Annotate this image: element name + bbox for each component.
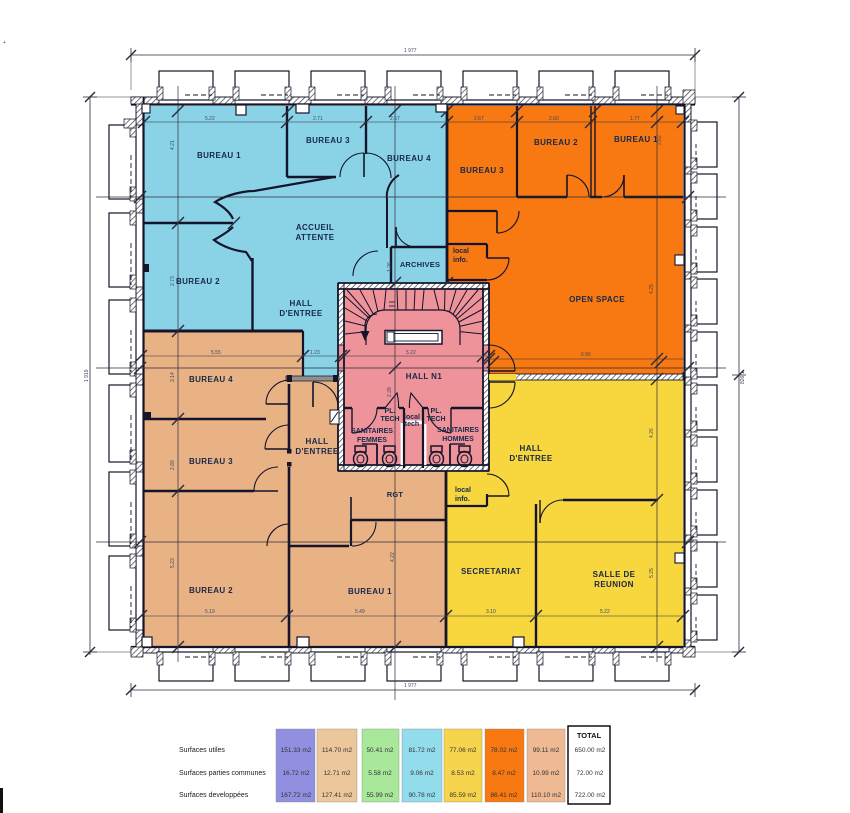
svg-text:OPEN SPACE: OPEN SPACE — [569, 295, 625, 304]
svg-text:110.10 m2: 110.10 m2 — [531, 792, 562, 799]
svg-text:BUREAU 1: BUREAU 1 — [348, 587, 392, 596]
svg-text:4.26: 4.26 — [649, 428, 655, 438]
svg-text:Surfaces utiles: Surfaces utiles — [179, 747, 225, 754]
svg-text:info.: info. — [455, 496, 470, 503]
svg-text:3.10: 3.10 — [486, 609, 496, 615]
svg-text:info.: info. — [453, 257, 468, 264]
svg-text:HALL: HALL — [306, 437, 329, 446]
svg-text:5.22: 5.22 — [205, 116, 215, 122]
svg-text:BUREAU 3: BUREAU 3 — [460, 166, 504, 175]
svg-text:4.21: 4.21 — [170, 140, 176, 150]
svg-text:BUREAU 4: BUREAU 4 — [387, 154, 431, 163]
svg-text:9.06 m2: 9.06 m2 — [410, 770, 434, 777]
svg-text:3.14: 3.14 — [170, 372, 176, 382]
svg-text:5.19: 5.19 — [205, 609, 215, 615]
svg-text:HALL: HALL — [290, 299, 313, 308]
svg-text:tech: tech — [405, 421, 419, 428]
svg-text:SALLE DE: SALLE DE — [593, 570, 636, 579]
svg-text:1 919: 1 919 — [84, 369, 90, 382]
svg-text:55.99 m2: 55.99 m2 — [366, 792, 393, 799]
svg-text:local: local — [455, 487, 471, 494]
svg-text:2.89: 2.89 — [170, 460, 176, 470]
svg-text:2.28: 2.28 — [387, 387, 393, 397]
svg-text:2.60: 2.60 — [549, 116, 559, 122]
svg-text:4.25: 4.25 — [649, 284, 655, 294]
svg-text:1.26: 1.26 — [387, 262, 393, 272]
svg-text:local: local — [453, 248, 469, 255]
svg-text:TOTAL: TOTAL — [577, 731, 602, 740]
svg-text:114.70 m2: 114.70 m2 — [322, 747, 353, 754]
svg-text:HOMMES: HOMMES — [442, 436, 474, 443]
svg-text:BUREAU 2: BUREAU 2 — [534, 138, 578, 147]
svg-text:90.78 m2: 90.78 m2 — [408, 792, 435, 799]
svg-text:5.25: 5.25 — [649, 568, 655, 578]
svg-text:1 977: 1 977 — [404, 683, 417, 689]
svg-text:8.47 m2: 8.47 m2 — [492, 770, 516, 777]
svg-text:127.41 m2: 127.41 m2 — [322, 792, 353, 799]
svg-text:SANITAIRES: SANITAIRES — [351, 428, 393, 435]
svg-text:85.59 m2: 85.59 m2 — [449, 792, 476, 799]
svg-text:TECH: TECH — [426, 416, 445, 423]
svg-text:1 977: 1 977 — [404, 48, 417, 54]
svg-text:Surfaces developpées: Surfaces developpées — [179, 792, 249, 799]
svg-text:5.55: 5.55 — [211, 350, 221, 356]
svg-text:2.67: 2.67 — [390, 116, 400, 122]
svg-text:HALL N1: HALL N1 — [406, 372, 443, 381]
svg-text:D'ENTREE: D'ENTREE — [295, 447, 339, 456]
svg-text:FEMMES: FEMMES — [357, 437, 387, 444]
svg-text:1.23: 1.23 — [310, 350, 320, 356]
svg-text:TECH: TECH — [380, 416, 399, 423]
svg-text:167.72 m2: 167.72 m2 — [281, 792, 312, 799]
svg-text:12.71 m2: 12.71 m2 — [323, 770, 350, 777]
svg-text:D'ENTREE: D'ENTREE — [279, 309, 323, 318]
svg-text:REUNION: REUNION — [594, 580, 634, 589]
svg-text:ARCHIVES: ARCHIVES — [400, 260, 440, 269]
svg-text:ATTENTE: ATTENTE — [295, 233, 334, 242]
svg-text:HALL: HALL — [520, 444, 543, 453]
svg-text:+: + — [3, 40, 6, 46]
svg-text:5.49: 5.49 — [355, 609, 365, 615]
svg-text:86.41 m2: 86.41 m2 — [490, 792, 517, 799]
svg-text:BUREAU 2: BUREAU 2 — [176, 277, 220, 286]
svg-text:1.77: 1.77 — [630, 116, 640, 122]
svg-text:77.06 m2: 77.06 m2 — [449, 747, 476, 754]
svg-text:BUREAU 1: BUREAU 1 — [197, 151, 241, 160]
svg-text:SANITAIRES: SANITAIRES — [437, 427, 479, 434]
svg-text:5.22: 5.22 — [406, 350, 416, 356]
svg-text:D'ENTREE: D'ENTREE — [509, 454, 553, 463]
svg-text:6.96: 6.96 — [581, 352, 591, 358]
svg-text:78.02 m2: 78.02 m2 — [490, 747, 517, 754]
svg-text:PL.: PL. — [385, 408, 396, 415]
svg-text:BUREAU 1: BUREAU 1 — [614, 135, 658, 144]
svg-text:722.00 m2: 722.00 m2 — [575, 792, 606, 799]
svg-text:SECRETARIAT: SECRETARIAT — [461, 567, 521, 576]
svg-text:BUREAU 4: BUREAU 4 — [189, 375, 233, 384]
svg-text:151.33 m2: 151.33 m2 — [281, 747, 312, 754]
svg-text:10.99 m2: 10.99 m2 — [532, 770, 559, 777]
svg-text:2.67: 2.67 — [474, 116, 484, 122]
svg-text:8.53 m2: 8.53 m2 — [451, 770, 475, 777]
svg-text:5.22: 5.22 — [600, 609, 610, 615]
svg-text:ACCUEIL: ACCUEIL — [296, 223, 334, 232]
svg-text:BUREAU 3: BUREAU 3 — [189, 457, 233, 466]
svg-text:BUREAU 3: BUREAU 3 — [306, 136, 350, 145]
svg-text:81.72 m2: 81.72 m2 — [408, 747, 435, 754]
svg-text:5.58 m2: 5.58 m2 — [368, 770, 392, 777]
svg-text:5.23: 5.23 — [170, 558, 176, 568]
svg-text:16.72 m2: 16.72 m2 — [282, 770, 309, 777]
svg-text:RGT: RGT — [387, 490, 404, 499]
svg-text:50.41 m2: 50.41 m2 — [366, 747, 393, 754]
svg-text:Surfaces parties communes: Surfaces parties communes — [179, 770, 266, 777]
svg-text:BUREAU 2: BUREAU 2 — [189, 586, 233, 595]
svg-text:PL.: PL. — [431, 408, 442, 415]
svg-text:2.71: 2.71 — [313, 116, 323, 122]
svg-text:72.00 m2: 72.00 m2 — [576, 770, 603, 777]
svg-text:826 1: 826 1 — [740, 371, 746, 384]
svg-text:4.22: 4.22 — [390, 552, 396, 562]
svg-text:650.00 m2: 650.00 m2 — [575, 747, 606, 754]
svg-text:local: local — [404, 414, 420, 421]
svg-text:99.11 m2: 99.11 m2 — [533, 747, 560, 754]
